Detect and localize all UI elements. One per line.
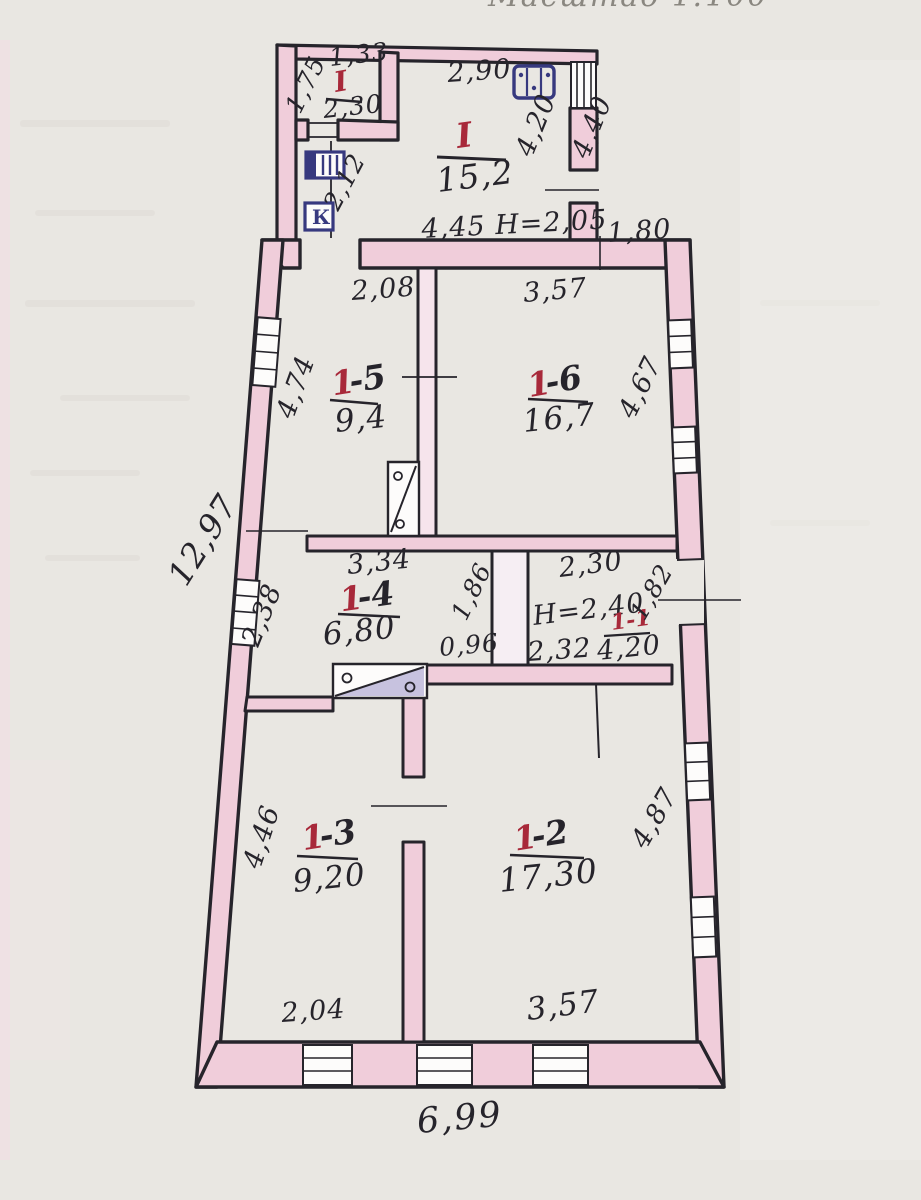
partition-1-3-1-2-upper — [403, 697, 424, 777]
bottom-window-2 — [417, 1045, 472, 1085]
scanned-floor-plan-page: Масштаб 1:100 — [0, 0, 921, 1200]
room-1-3-num: -3 — [317, 811, 359, 855]
furnace-wedge-horizontal — [333, 664, 427, 698]
room-1-4-area: 6,80 — [321, 610, 397, 653]
room3-top-wall — [245, 697, 333, 711]
bottom-window-1 — [303, 1045, 352, 1085]
right-window-4 — [691, 897, 716, 958]
k-box-letter: К — [312, 205, 330, 229]
room-1-2-num: -2 — [529, 812, 571, 856]
right-window-2 — [672, 427, 697, 474]
partition-1-3-1-2-lower — [403, 842, 424, 1042]
right-window-3 — [685, 743, 710, 801]
room-1-5-area: 9,4 — [333, 399, 389, 440]
hall-bottom-wall — [423, 665, 672, 684]
dim-r16-top: 3,57 — [522, 273, 589, 309]
dim-r15-top: 2,08 — [349, 272, 416, 307]
dim-hall-bottom: 2,32 — [525, 633, 592, 668]
furnace-wedge-vertical — [388, 462, 419, 536]
bottom-window-3 — [533, 1045, 588, 1085]
scale-note-cropped: Масштаб 1:100 — [487, 0, 768, 14]
dim-annex-top: 2,90 — [445, 54, 512, 89]
small-room-bottom-wall-right — [338, 120, 398, 140]
room-1-6-area: 16,7 — [521, 397, 597, 440]
left-window-upper — [252, 317, 280, 387]
dim-wall-right-top: 1,80 — [606, 214, 672, 249]
room-1-6-num: -6 — [542, 357, 585, 402]
right-window-1 — [668, 320, 693, 369]
room-1-3-area: 9,20 — [291, 857, 367, 900]
annex-left-wall — [277, 45, 296, 240]
dim-r14-bottom: 0,96 — [438, 628, 500, 662]
dim-r13-bottom: 2,04 — [279, 994, 346, 1029]
small-room-bottom-wall-left — [296, 120, 308, 140]
floor-plan-drawing: Масштаб 1:100 — [0, 0, 921, 1200]
room-1-5-num: -5 — [346, 356, 388, 400]
partition-1-5-1-6 — [418, 268, 436, 536]
dim-outer-bottom: 6,99 — [415, 1095, 504, 1142]
